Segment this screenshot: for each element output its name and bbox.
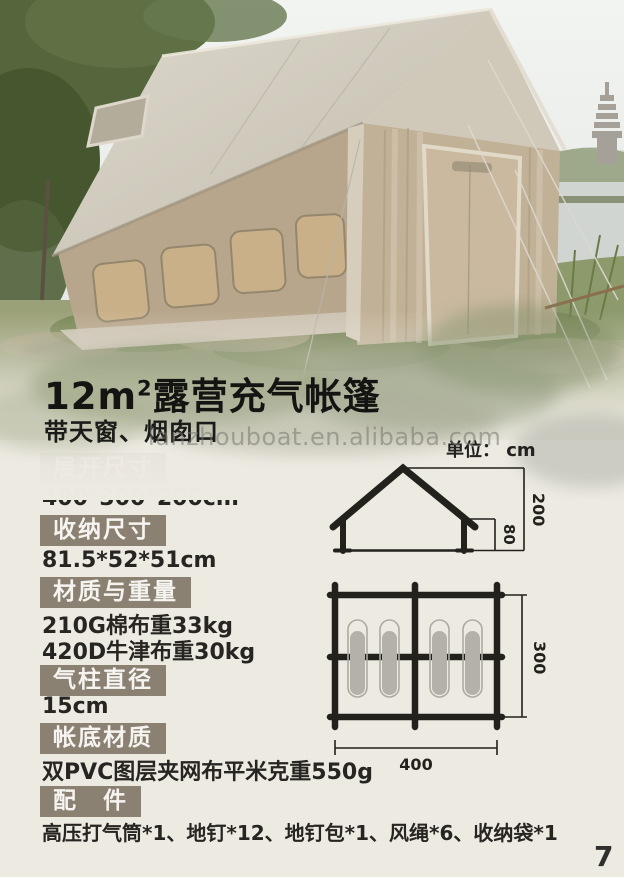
spec-label-packed-size: 收纳尺寸	[40, 515, 166, 546]
tent-side-wall	[58, 127, 352, 350]
floor-plan-depth: 300	[530, 641, 549, 674]
side-view-total-height: 200	[529, 493, 548, 526]
watermark: lanzhouboat.en.alibaba.com	[148, 423, 501, 451]
tent-roof	[52, 9, 490, 256]
spec-label-accessories: 配 件	[40, 786, 141, 817]
floor-plan-width: 400	[399, 755, 432, 774]
far-treeline	[300, 147, 624, 196]
spec-value-material-weight-2: 420D牛津布重30kg	[42, 634, 255, 666]
tent-door	[424, 146, 520, 344]
tent-corner-beam	[346, 124, 364, 342]
sleeping-bag	[430, 620, 449, 697]
spec-value-accessories: 高压打气筒*1、地钉*12、地钉包*1、风绳*6、收纳袋*1	[42, 817, 558, 846]
page-number: 7	[594, 840, 613, 873]
spec-value-packed-size: 81.5*52*51cm	[42, 548, 217, 573]
sleeping-bag	[348, 620, 367, 697]
tent	[52, 9, 624, 390]
sleeping-bag	[463, 620, 482, 697]
spec-label-air-pole-diameter: 气柱直径	[40, 665, 166, 696]
spec-value-air-pole-diameter: 15cm	[42, 694, 109, 719]
roof-skylight	[88, 96, 148, 146]
sleeping-bag	[380, 620, 399, 697]
product-spec-page: 12m2露营充气帐篷 带天窗、烟囱口 lanzhouboat.en.alibab…	[0, 0, 624, 877]
side-view-wall-height: 80	[500, 524, 518, 545]
tent-gable	[363, 9, 560, 151]
squared-superscript: 2	[137, 377, 153, 401]
guy-ropes	[300, 60, 618, 390]
spec-value-unfolded-size: 400*300*200cm	[42, 486, 239, 511]
lake-water	[280, 150, 624, 335]
spec-label-material-weight: 材质与重量	[40, 577, 191, 608]
tent-front-wall	[357, 123, 560, 345]
ground-pole	[545, 286, 624, 308]
spec-label-floor-material: 帐底材质	[40, 723, 166, 754]
sky	[0, 0, 624, 340]
pagoda	[592, 82, 622, 164]
side-view-diagram	[333, 468, 524, 551]
spec-label-unfolded-size: 展开尺寸	[40, 453, 166, 484]
tent-side-windows	[92, 214, 346, 323]
shoreline	[300, 196, 624, 203]
dimension-diagrams: 200 80	[320, 455, 560, 785]
trees	[0, 0, 287, 324]
